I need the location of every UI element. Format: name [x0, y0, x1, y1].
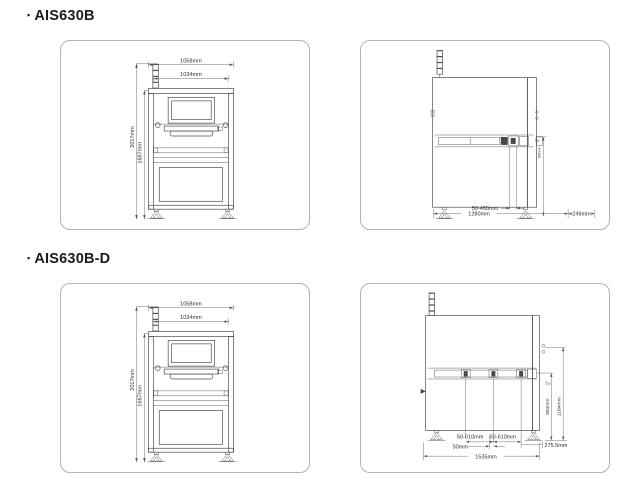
side-dimensions: +100 -20 900mm 50-460mm 1280mm 249mm	[434, 137, 595, 218]
signal-tower-icon	[429, 293, 435, 316]
conveyor-height-tol-plus: +100	[546, 381, 548, 387]
model-title-ais630b-d: ▪ AIS630B-D	[27, 251, 110, 267]
dim-conveyor-height-label: 900mm	[537, 147, 541, 158]
conveyor-side-dual	[428, 368, 537, 379]
machine-front-outline	[148, 88, 233, 209]
dim-lane1-range-label: 50-610mm	[457, 434, 484, 440]
model-title-ais630b: ▪ AIS630B	[27, 8, 95, 24]
ais630bd-side-panel: 50-610mm 50-610mm 50mm 275.5mm 1535mm	[360, 283, 610, 473]
model-name: AIS630B	[34, 8, 94, 24]
machine-front-outline	[148, 331, 233, 452]
dim-width-inner-label: 1034mm	[180, 315, 202, 321]
conveyor-side	[435, 135, 543, 147]
ais630b-side-panel: +100 -20 900mm 50-460mm 1280mm 249mm	[360, 40, 610, 230]
leveling-feet	[147, 209, 236, 218]
dim-depth-total-label: 1280mm	[468, 212, 490, 218]
ais630b-front-view-drawing: 1058mm 1034mm 2017mm 1667mm	[61, 41, 309, 229]
ais630bd-side-view-drawing: 50-610mm 50-610mm 50mm 275.5mm 1535mm	[361, 284, 609, 472]
ais630bd-front-panel: 1058mm 1034mm 2017mm 1667mm	[60, 283, 310, 473]
conveyor-height-tol-minus: -20	[549, 382, 551, 386]
dim-height-to-conveyor-top-label: 1184mm	[557, 397, 563, 416]
dim-height-inner-label: 1667mm	[137, 142, 143, 164]
machine-side-outline	[431, 78, 542, 208]
dim-rear-clearance-label: 275.5mm	[544, 443, 567, 449]
dim-height-total-label: 2017mm	[130, 126, 136, 148]
front-dimensions: 1058mm 1034mm 2017mm 1667mm	[130, 301, 233, 462]
ais630b-side-view-drawing: +100 -20 900mm 50-460mm 1280mm 249mm	[361, 41, 609, 229]
ais630bd-front-view-drawing: 1058mm 1034mm 2017mm 1667mm	[61, 284, 309, 472]
dim-center-rail-label: 50mm	[453, 445, 469, 451]
title-bullet: ▪	[27, 11, 30, 20]
dim-lane2-range-label: 50-610mm	[490, 434, 517, 440]
dim-width-outer-label: 1058mm	[180, 58, 202, 64]
leveling-feet	[147, 452, 236, 461]
title-bullet: ▪	[27, 254, 30, 263]
dim-conveyor-height-label: 900mm	[545, 398, 551, 414]
page: { "colors": { "line": "#4c4c4c", "dim_li…	[0, 0, 640, 489]
dim-width-inner-label: 1034mm	[180, 72, 202, 78]
conveyor-height-tol-minus: -20	[539, 139, 541, 143]
machine-side-outline	[421, 316, 545, 431]
dim-rear-clearance-label: 249mm	[572, 212, 591, 218]
dim-height-inner-label: 1667mm	[137, 385, 143, 407]
model-name: AIS630B-D	[34, 251, 110, 267]
signal-tower-icon	[437, 50, 443, 77]
leveling-feet	[428, 430, 543, 440]
dim-height-total-label: 2017mm	[130, 369, 136, 391]
board-flow-arrow-icon	[421, 389, 426, 394]
front-dimensions: 1058mm 1034mm 2017mm 1667mm	[130, 58, 233, 219]
ais630b-front-panel: 1058mm 1034mm 2017mm 1667mm	[60, 40, 310, 230]
dim-width-outer-label: 1058mm	[180, 301, 202, 307]
side-dimensions: 50-610mm 50-610mm 50mm 275.5mm 1535mm	[424, 347, 568, 460]
dim-depth-total-label: 1535mm	[475, 455, 497, 461]
